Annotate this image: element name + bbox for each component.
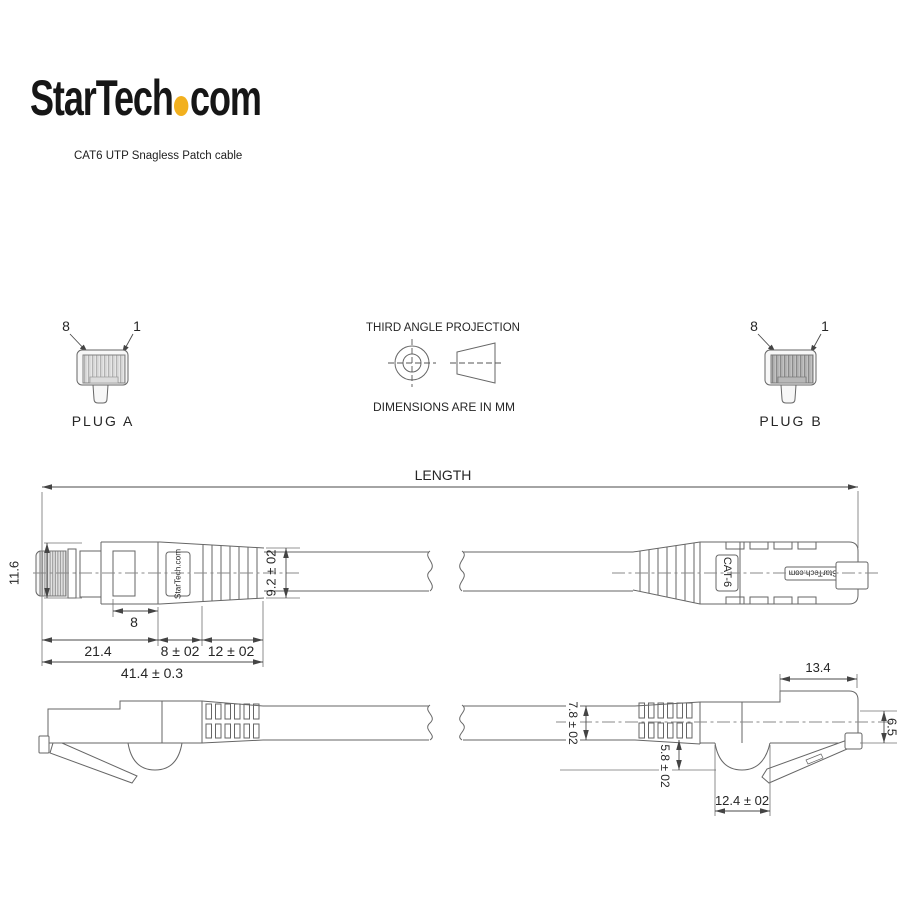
dim-fin-height: 5.8 ± 02 <box>658 744 672 788</box>
contact-window <box>113 551 135 596</box>
rj45-contacts-top <box>40 551 66 596</box>
relief-slots-right <box>639 703 692 738</box>
plug-a-tab <box>93 385 108 403</box>
dim-cable-diameter: 7.8 ± 02 <box>566 701 580 745</box>
dim-boot-diameter: 9.2 ± 02 <box>264 550 279 597</box>
third-angle-projection-title: THIRD ANGLE PROJECTION <box>366 322 520 334</box>
dim-plug-height: 11.6 <box>7 561 22 585</box>
plug-body-side-right <box>700 691 858 743</box>
plug-b-tab <box>781 385 796 403</box>
technical-drawing-page: StarTechcom CAT6 UTP Snagless Patch cabl… <box>0 0 900 900</box>
boot-fin-left <box>128 743 182 770</box>
boot-fin-right <box>715 743 770 770</box>
latch-catch-left <box>39 736 49 753</box>
cat6-marking: CAT-6 <box>721 557 733 587</box>
plug-body-side-left <box>48 701 202 743</box>
cable-top-view <box>264 551 633 591</box>
latch-anchor <box>845 733 862 749</box>
top-view-drawing: StarTech.com <box>7 467 881 681</box>
boot-brand-marking: StarTech.com <box>174 549 183 599</box>
plug-b-pin8-label: 8 <box>750 318 758 334</box>
plug-a-pin8-label: 8 <box>62 318 70 334</box>
plug-a-front-view: 8 1 PLUG A <box>62 318 141 429</box>
units-note: DIMENSIONS ARE IN MM <box>373 400 515 414</box>
dim-plug-body-length: 21.4 <box>84 643 111 659</box>
dim-fin-width: 12.4 ± 02 <box>715 793 769 808</box>
third-angle-projection-symbol: THIRD ANGLE PROJECTION DIMENSIONS ARE IN… <box>366 322 520 414</box>
dim-length-label: LENGTH <box>415 467 472 483</box>
cable-break-symbol <box>460 705 465 740</box>
plug-b-ledge <box>778 377 806 383</box>
dim-contact-window: 8 <box>130 614 138 630</box>
plug-a-caption: PLUG A <box>72 413 135 429</box>
plug-b-caption: PLUG B <box>759 413 822 429</box>
side-view-drawing: 7.8 ± 02 5.8 ± 02 12.4 ± 02 13.4 6.5 <box>39 660 900 816</box>
dim-front-height: 6.5 <box>885 718 900 736</box>
dim-boot-length: 8 ± 02 <box>161 643 200 659</box>
cable-break-symbol <box>428 551 433 591</box>
dim-strain-relief-length: 12 ± 02 <box>208 643 255 659</box>
technical-drawing: 8 1 PLUG A 8 1 PLUG B THIRD ANGLE PROJEC… <box>0 0 900 900</box>
dim-front-length: 13.4 <box>805 660 830 675</box>
dim-overall-length: 41.4 ± 0.3 <box>121 665 183 681</box>
plug-b-front-view: 8 1 PLUG B <box>750 318 829 429</box>
plug-b-pin1-label: 1 <box>821 318 829 334</box>
plug-a-ledge <box>90 377 118 383</box>
cable-break-symbol <box>428 705 433 740</box>
relief-slots-left <box>206 704 259 738</box>
cable-break-symbol <box>460 551 465 591</box>
plug-a-pin1-label: 1 <box>133 318 141 334</box>
plug-tip-tab <box>836 562 868 589</box>
snagless-latch-left <box>50 743 137 783</box>
